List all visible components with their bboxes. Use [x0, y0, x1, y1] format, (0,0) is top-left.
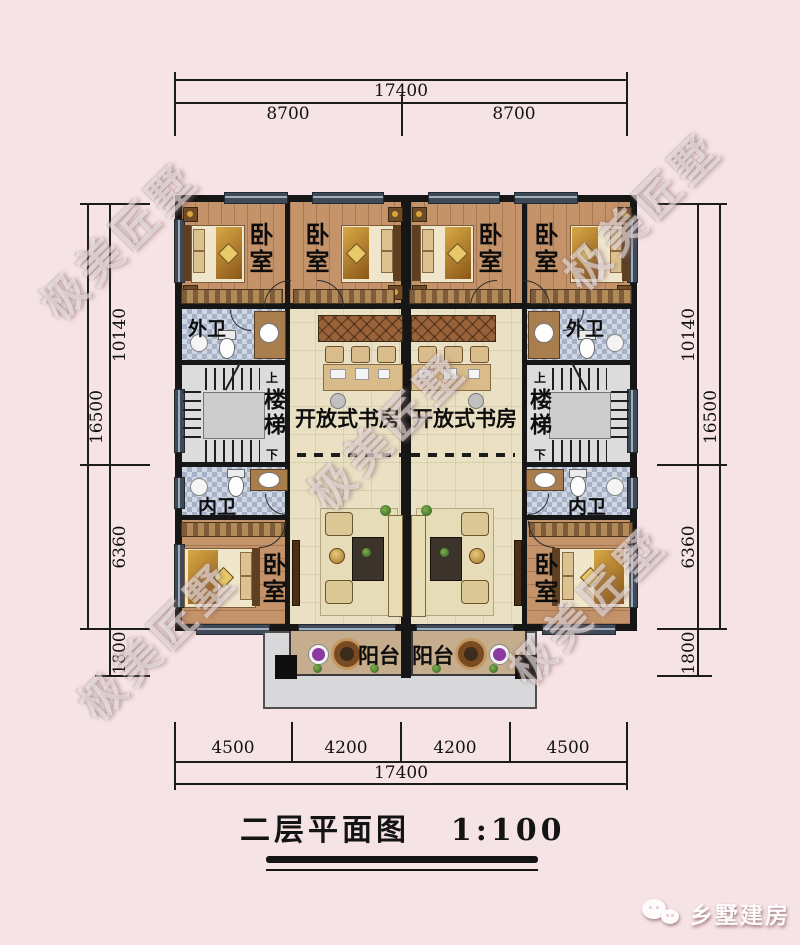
room-label-balcony: 阳台: [358, 640, 400, 670]
wardrobe: [293, 289, 395, 304]
armchair: [325, 512, 353, 536]
bed-headboard: [412, 225, 420, 281]
rattan-chair: [455, 638, 487, 670]
pillow: [193, 229, 205, 251]
coffee-table: [352, 537, 384, 581]
room-label-bedroom: 卧室: [260, 552, 284, 606]
plant: [362, 548, 371, 557]
dim-top-seg: 8700: [464, 104, 564, 124]
plant: [489, 664, 498, 673]
drawing-title: 二层平面图 1:100: [240, 805, 560, 849]
stair-treads: [183, 390, 201, 438]
pillow: [562, 576, 574, 600]
wall: [522, 360, 637, 365]
wall: [522, 303, 527, 631]
desk-item: [378, 369, 390, 379]
basin: [258, 472, 280, 488]
title-underline-thin: [266, 869, 538, 871]
dim-tick: [401, 94, 403, 136]
plant: [313, 664, 322, 673]
window: [313, 193, 383, 203]
nightstand: [617, 207, 632, 222]
study-cabinet: [411, 315, 496, 342]
dim-left-overall: 16500: [87, 367, 107, 467]
nightstand: [412, 207, 427, 222]
floorplan-page: 17400 8700 8700 16500 10140 6360 1800 16…: [0, 0, 800, 945]
dim-tick: [400, 722, 402, 762]
room-label-bedroom: 卧室: [532, 222, 556, 276]
wechat-icon: [642, 897, 682, 929]
dim-line: [175, 783, 627, 785]
dim-tick: [291, 722, 293, 762]
window: [175, 478, 184, 508]
study-cabinet: [318, 315, 403, 342]
pillow: [193, 251, 205, 273]
desk-item: [355, 368, 369, 380]
room-label-outer-bath: 外卫: [188, 314, 226, 341]
shower-drain: [606, 334, 624, 352]
stair-treads: [552, 440, 607, 462]
desk-chair: [377, 346, 396, 363]
drawing-title-text: 二层平面图: [240, 813, 410, 848]
desk-item: [443, 368, 457, 380]
basin: [534, 472, 556, 488]
balcony-table: [490, 645, 509, 664]
side-table: [469, 548, 485, 564]
basin: [259, 323, 279, 343]
dim-tick: [174, 72, 176, 136]
pillow: [562, 552, 574, 576]
window: [628, 478, 637, 508]
desk-chair: [470, 346, 489, 363]
room-label-open-study: 开放式书房: [292, 403, 403, 433]
plant: [440, 548, 449, 557]
stair-down-mark: 下: [534, 446, 546, 463]
coffee-table: [430, 537, 462, 581]
pillow: [422, 229, 434, 251]
room-label-stairs: 楼梯: [262, 388, 284, 438]
dim-right-balcony: 1800: [679, 603, 699, 703]
side-table: [329, 548, 345, 564]
dim-right-overall: 16500: [701, 367, 721, 467]
tv-cabinet: [514, 540, 522, 606]
armchair: [325, 580, 353, 604]
window: [515, 193, 577, 203]
room-label-inner-bath: 内卫: [568, 492, 606, 519]
shower-drain: [606, 478, 624, 496]
dim-top-seg: 8700: [238, 104, 338, 124]
room-label-open-study: 开放式书房: [409, 403, 520, 433]
dim-bottom-total: 17400: [351, 763, 451, 783]
dim-tick: [174, 722, 176, 790]
tv-cabinet: [292, 540, 300, 606]
dim-left-upper: 10140: [110, 285, 130, 385]
stair-landing: [549, 392, 611, 439]
desk-chair: [444, 346, 463, 363]
window: [225, 193, 287, 203]
toilet: [579, 338, 595, 359]
stair-up-mark: 上: [534, 369, 546, 386]
armchair: [461, 580, 489, 604]
stair-up-mark: 上: [266, 369, 278, 386]
dim-bottom-seg: 4200: [405, 738, 505, 758]
dim-bottom-seg: 4500: [183, 738, 283, 758]
armchair: [461, 512, 489, 536]
plant: [380, 505, 391, 516]
desk-item: [468, 369, 480, 379]
dim-bottom-seg: 4200: [296, 738, 396, 758]
brand-logo: 乡墅建房: [642, 896, 790, 930]
room-label-bedroom: 卧室: [247, 222, 271, 276]
nightstand: [388, 207, 403, 222]
window: [543, 625, 615, 634]
stair-down-mark: 下: [266, 446, 278, 463]
bed-headboard: [393, 225, 401, 281]
dim-bottom-seg: 4500: [518, 738, 618, 758]
toilet: [219, 338, 235, 359]
railing-dashed: [297, 453, 401, 457]
nightstand: [183, 207, 198, 222]
bed-headboard: [183, 225, 191, 281]
dim-tick: [509, 722, 511, 762]
bed-headboard: [622, 225, 630, 281]
balcony-table: [309, 645, 328, 664]
window: [429, 193, 499, 203]
drawing-scale: 1:100: [451, 813, 566, 848]
pillow: [240, 576, 252, 600]
column: [515, 655, 537, 679]
pillow: [240, 552, 252, 576]
room-label-balcony: 阳台: [412, 640, 454, 670]
sofa: [411, 515, 426, 617]
room-label-bedroom: 卧室: [476, 222, 500, 276]
plant: [421, 505, 432, 516]
dim-tick: [626, 72, 628, 136]
window: [197, 625, 269, 634]
dim-left-balcony: 1800: [110, 603, 130, 703]
column: [275, 655, 297, 679]
dim-tick: [80, 203, 150, 205]
desk-chair: [325, 346, 344, 363]
party-wall: [401, 631, 411, 678]
room-label-inner-bath: 内卫: [198, 492, 236, 519]
room-label-stairs: 楼梯: [528, 388, 550, 438]
room-label-bedroom: 卧室: [532, 552, 556, 606]
dim-right-lower: 6360: [679, 497, 699, 597]
desk-item: [330, 369, 346, 379]
pillow: [381, 251, 393, 273]
dim-tick: [657, 203, 727, 205]
pillow: [610, 229, 622, 251]
pillow: [381, 229, 393, 251]
pillow: [422, 251, 434, 273]
railing-dashed: [411, 453, 515, 457]
window: [175, 545, 184, 607]
stair-treads: [205, 440, 260, 462]
basin: [534, 323, 554, 343]
window: [628, 390, 637, 452]
pillow: [610, 251, 622, 273]
desk-item: [418, 369, 434, 379]
brand-name: 乡墅建房: [690, 896, 790, 930]
desk-chair: [418, 346, 437, 363]
room-label-bedroom: 卧室: [303, 222, 327, 276]
stair-landing: [203, 392, 265, 439]
dim-right-upper: 10140: [679, 285, 699, 385]
dim-tick: [626, 722, 628, 790]
sofa: [388, 515, 403, 617]
desk-chair: [351, 346, 370, 363]
wall: [175, 360, 290, 365]
dim-left-lower: 6360: [110, 497, 130, 597]
stair-treads: [611, 390, 629, 438]
title-underline-thick: [266, 856, 538, 863]
